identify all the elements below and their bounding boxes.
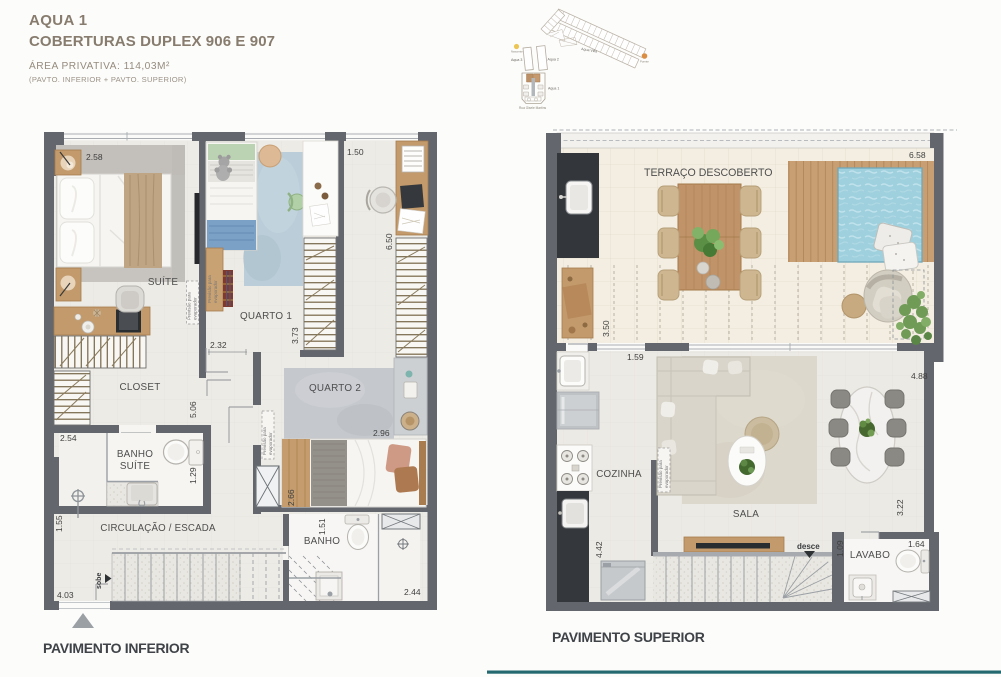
svg-text:Aqua 1: Aqua 1 [548, 87, 559, 91]
svg-text:2.54: 2.54 [60, 433, 77, 443]
svg-text:PAVIMENTO SUPERIOR: PAVIMENTO SUPERIOR [552, 629, 705, 645]
svg-text:SUÍTE: SUÍTE [120, 461, 150, 472]
svg-text:PAVIMENTO INFERIOR: PAVIMENTO INFERIOR [43, 640, 189, 656]
svg-text:AQUA 1: AQUA 1 [29, 12, 88, 29]
svg-text:1.09: 1.09 [835, 540, 845, 557]
svg-text:6.50: 6.50 [384, 233, 394, 250]
svg-text:COZINHA: COZINHA [596, 469, 642, 480]
svg-text:1.51: 1.51 [317, 518, 327, 535]
svg-text:SALA: SALA [733, 509, 759, 520]
svg-text:Previsão para: Previsão para [262, 427, 267, 455]
svg-text:desce: desce [797, 542, 820, 551]
svg-text:COBERTURAS DUPLEX 906 E 907: COBERTURAS DUPLEX 906 E 907 [29, 33, 275, 50]
svg-text:2.66: 2.66 [286, 489, 296, 506]
svg-text:1.64: 1.64 [908, 539, 925, 549]
svg-text:6.58: 6.58 [909, 150, 926, 160]
svg-text:Aqua 2: Aqua 2 [548, 58, 559, 62]
svg-text:2.44: 2.44 [404, 587, 421, 597]
svg-text:1.50: 1.50 [347, 147, 364, 157]
svg-text:2.58: 2.58 [86, 152, 103, 162]
svg-text:LAVABO: LAVABO [850, 550, 890, 561]
svg-text:(PAVTO. INFERIOR + PAVTO. SUPE: (PAVTO. INFERIOR + PAVTO. SUPERIOR) [29, 75, 187, 84]
svg-text:CIRCULAÇÃO / ESCADA: CIRCULAÇÃO / ESCADA [100, 523, 216, 534]
svg-text:5.06: 5.06 [188, 401, 198, 418]
svg-text:1.59: 1.59 [627, 352, 644, 362]
svg-text:evaporador: evaporador [664, 465, 669, 488]
svg-text:evaporador: evaporador [193, 297, 198, 320]
svg-text:Poente: Poente [640, 60, 649, 64]
svg-text:ÁREA PRIVATIVA: 114,03M²: ÁREA PRIVATIVA: 114,03M² [29, 59, 170, 72]
svg-text:2.96: 2.96 [373, 428, 390, 438]
svg-text:SUÍTE: SUÍTE [148, 277, 178, 288]
svg-text:sobe: sobe [96, 573, 103, 589]
svg-text:BANHO: BANHO [117, 449, 153, 460]
svg-text:Previsão para: Previsão para [658, 460, 663, 488]
svg-text:Previsão para: Previsão para [187, 292, 192, 320]
svg-text:QUARTO 2: QUARTO 2 [309, 383, 361, 394]
svg-text:Aqua 3: Aqua 3 [511, 58, 522, 62]
svg-text:evaporador: evaporador [268, 432, 273, 455]
svg-text:4.03: 4.03 [57, 590, 74, 600]
svg-text:evaporador: evaporador [213, 280, 218, 303]
svg-text:1.29: 1.29 [188, 467, 198, 484]
svg-text:2.32: 2.32 [210, 340, 227, 350]
svg-text:3.73: 3.73 [290, 327, 300, 344]
svg-text:4.88: 4.88 [911, 371, 928, 381]
svg-text:4.42: 4.42 [594, 541, 604, 558]
svg-text:3.50: 3.50 [601, 320, 611, 337]
svg-text:3.22: 3.22 [895, 499, 905, 516]
svg-text:Previsão para: Previsão para [207, 275, 212, 303]
svg-text:TERRAÇO DESCOBERTO: TERRAÇO DESCOBERTO [644, 167, 773, 179]
svg-text:QUARTO 1: QUARTO 1 [240, 311, 292, 322]
svg-text:CLOSET: CLOSET [119, 382, 160, 393]
svg-text:Rua Gisele Martins: Rua Gisele Martins [519, 106, 547, 110]
svg-text:1.55: 1.55 [54, 515, 64, 532]
svg-text:Nascente: Nascente [511, 50, 523, 54]
svg-text:BANHO: BANHO [304, 536, 340, 547]
